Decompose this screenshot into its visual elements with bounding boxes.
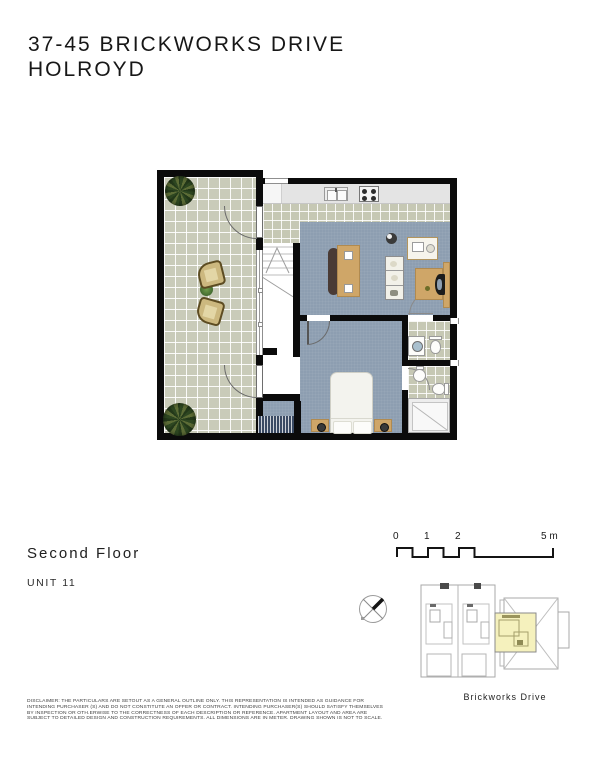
- scale-label-0: 0: [393, 531, 399, 542]
- washing-machine-icon: [408, 336, 425, 356]
- scale-label-2: 2: [455, 531, 461, 542]
- compass-icon: [352, 588, 394, 630]
- wall: [402, 360, 450, 366]
- terrace-door-leaf: [256, 206, 263, 238]
- floor-plan: [157, 170, 457, 440]
- basin-icon: [413, 369, 426, 382]
- wall: [300, 315, 307, 321]
- wall: [294, 401, 301, 433]
- shelf-unit-icon: [385, 256, 404, 300]
- potted-plant-icon: [163, 403, 196, 436]
- nightstand-icon: [374, 419, 392, 432]
- media-unit-icon: [407, 237, 438, 260]
- wardrobe-icon: [258, 416, 294, 433]
- wall: [330, 315, 408, 321]
- wall: [293, 243, 300, 357]
- window: [256, 250, 263, 355]
- wall: [256, 170, 263, 206]
- wall: [433, 315, 450, 321]
- kitchen-counter: [263, 184, 450, 204]
- disclaimer-line-4: SUBJECT TO DETAILED DESIGN AND CONSTRUCT…: [27, 716, 383, 722]
- window: [450, 318, 459, 324]
- terrace-door2-leaf: [256, 365, 263, 398]
- toilet-icon: [430, 340, 441, 354]
- toilet-icon: [432, 383, 445, 395]
- floorplan-page: 37-45 BRICKWORKS DRIVE HOLROYD: [0, 0, 600, 762]
- key-plan: [418, 582, 576, 684]
- wall: [157, 433, 457, 440]
- bed-icon: [330, 372, 373, 433]
- shower-icon: [408, 398, 450, 433]
- floor-label: Second Floor: [27, 545, 140, 562]
- wall: [256, 355, 263, 365]
- wall: [157, 170, 164, 440]
- kitchen-sink-icon: [324, 187, 348, 201]
- title-line-2: HOLROYD: [28, 57, 345, 82]
- disclaimer-text: DISCLAIMER: THE PARTICULARS ARE SETOUT A…: [27, 699, 383, 722]
- window: [450, 360, 459, 366]
- scale-label-1: 1: [424, 531, 430, 542]
- disclaimer-line-2: INTENDING PURCHASER (S) AND DO NOT CONST…: [27, 705, 383, 711]
- office-chair-icon: [435, 274, 445, 295]
- wall: [256, 238, 263, 250]
- disclaimer-line-1: DISCLAIMER: THE PARTICULARS ARE SETOUT A…: [27, 699, 383, 705]
- scale-bar-icon: [393, 544, 563, 562]
- dining-table-icon: [337, 245, 360, 297]
- nightstand-icon: [311, 419, 329, 432]
- kitchen-cabinet: [263, 184, 282, 203]
- round-side-table-icon: [386, 233, 397, 244]
- wall: [157, 170, 263, 177]
- window: [265, 178, 288, 184]
- scale-label-5m: 5 m: [541, 531, 558, 542]
- cooktop-icon: [359, 186, 379, 202]
- wall: [450, 178, 457, 440]
- unit-label: UNIT 11: [27, 577, 76, 589]
- potted-plant-icon: [165, 176, 195, 206]
- page-title: 37-45 BRICKWORKS DRIVE HOLROYD: [28, 32, 345, 82]
- street-label: Brickworks Drive: [440, 692, 570, 702]
- title-line-1: 37-45 BRICKWORKS DRIVE: [28, 32, 345, 57]
